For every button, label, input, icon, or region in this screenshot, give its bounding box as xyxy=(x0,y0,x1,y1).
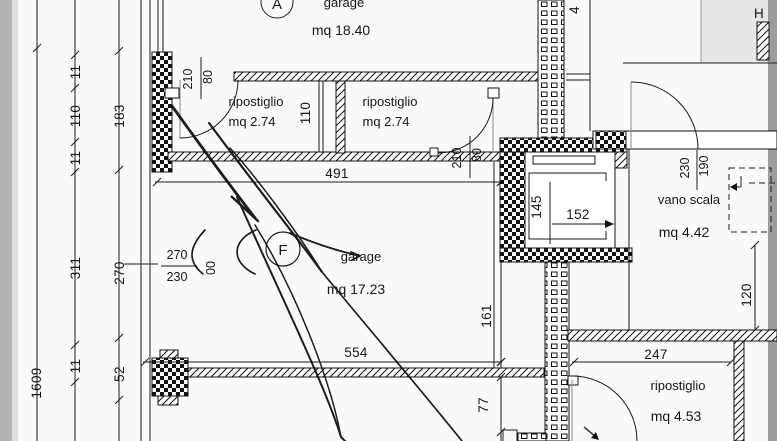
dim-label: 230 xyxy=(678,158,692,179)
wall-cavity xyxy=(518,433,546,441)
pillar-block xyxy=(152,358,188,396)
door-ripostiglio-3 xyxy=(568,376,637,441)
door-ripostiglio-2 xyxy=(430,88,499,156)
door-jamb xyxy=(430,148,438,156)
wall-segment xyxy=(757,22,769,60)
dim-label: 247 xyxy=(644,347,667,362)
floor-plan-canvas: 1609 11 110 11 311 11 183 270 52 A garag… xyxy=(0,0,777,441)
dim-label: 491 xyxy=(325,166,348,181)
scan-edge-right xyxy=(768,0,777,441)
pillar-tab xyxy=(158,396,178,405)
shaft-wall-left xyxy=(500,152,525,248)
dim-label: 210 xyxy=(450,148,464,169)
room-name: ripostiglio xyxy=(363,94,418,109)
shaft-wall-bottom xyxy=(500,248,632,262)
shaft-door-slot xyxy=(533,156,595,164)
dim-ticks xyxy=(33,44,123,404)
ripostiglio-1-room: ripostiglio mq 2.74 xyxy=(229,94,284,129)
room-area: mq 2.74 xyxy=(363,114,410,129)
wall-segment xyxy=(188,368,544,377)
scan-edge-left xyxy=(0,0,12,441)
room-area: mq 2.74 xyxy=(229,114,276,129)
room-name: garage xyxy=(341,249,381,264)
door-jamb xyxy=(165,88,179,98)
wall-segment xyxy=(734,341,744,441)
wall-segment xyxy=(596,131,626,149)
floor-plan-scan: 1609 11 110 11 311 11 183 270 52 A garag… xyxy=(0,0,777,441)
door-arc xyxy=(572,376,637,441)
dim-label: 80 xyxy=(470,148,484,162)
stair-arrow-head xyxy=(730,183,737,191)
dim-label: 00 xyxy=(204,261,218,275)
door-jamb xyxy=(488,88,499,98)
dim-label: 11 xyxy=(68,65,83,80)
dim-label: 11 xyxy=(68,151,83,166)
ripostiglio-2-room: ripostiglio mq 2.74 xyxy=(363,94,418,129)
room-name: ripostiglio xyxy=(651,378,706,393)
scan-edge-left-soft xyxy=(12,0,18,441)
outer-left-wall xyxy=(141,0,188,441)
stair-outline-dashed xyxy=(729,168,771,232)
garage-f-room: 491 F garage mq 17.23 270 230 00 554 161… xyxy=(124,162,544,441)
pen-stroke xyxy=(237,230,256,274)
dim-label: 152 xyxy=(566,207,589,222)
dim-label: 1609 xyxy=(29,367,44,398)
room-tag: A xyxy=(272,0,282,13)
dim-label: 270 xyxy=(167,248,188,262)
room-tag: F xyxy=(278,242,287,259)
room-area: mq 4.53 xyxy=(651,408,702,424)
dim-label: 4 xyxy=(567,6,582,14)
room-name: ripostiglio xyxy=(229,94,284,109)
corner-label: H xyxy=(754,6,764,21)
ripostiglio-3-room: 247 ripostiglio mq 4.53 xyxy=(568,330,777,441)
dim-label: 145 xyxy=(529,195,544,218)
dim-label: 11 xyxy=(68,359,83,374)
door-arc xyxy=(438,98,493,153)
wall-partition xyxy=(336,81,345,153)
dim-label: 210 xyxy=(181,69,195,90)
dim-label: 120 xyxy=(739,283,754,306)
dim-label: 270 xyxy=(112,261,127,284)
dim-label: 554 xyxy=(344,345,368,360)
pen-stroke xyxy=(231,196,258,221)
dim-label: 80 xyxy=(201,70,215,84)
dim-label: 110 xyxy=(298,102,313,124)
door-jamb xyxy=(568,376,578,385)
dim-label: 77 xyxy=(476,397,491,413)
garage-a-room: A garage mq 18.40 xyxy=(261,0,370,38)
dim-label: 230 xyxy=(167,270,188,284)
room-area: mq 4.42 xyxy=(659,224,710,240)
dim-label: 110 xyxy=(68,105,83,127)
pen-stroke xyxy=(322,272,462,441)
wall-line xyxy=(503,430,517,441)
dim-label: 311 xyxy=(68,257,83,279)
dim-label: 190 xyxy=(697,156,711,177)
elevator-shaft: 145 152 xyxy=(500,138,632,262)
room-name: vano scala xyxy=(658,192,721,207)
room-area: mq 18.40 xyxy=(312,22,371,38)
wall-segment xyxy=(568,330,777,341)
room-name: garage xyxy=(324,0,364,10)
wall-cavity xyxy=(538,0,564,138)
shaft-wall-corner xyxy=(615,152,627,168)
wall-segment xyxy=(234,72,540,81)
left-dimension-chains: 1609 11 110 11 311 11 183 270 52 xyxy=(29,0,127,441)
dim-label: 161 xyxy=(479,304,494,327)
dim-label: 52 xyxy=(112,366,127,382)
wall-cavity xyxy=(545,262,569,441)
dim-label: 183 xyxy=(112,104,127,127)
